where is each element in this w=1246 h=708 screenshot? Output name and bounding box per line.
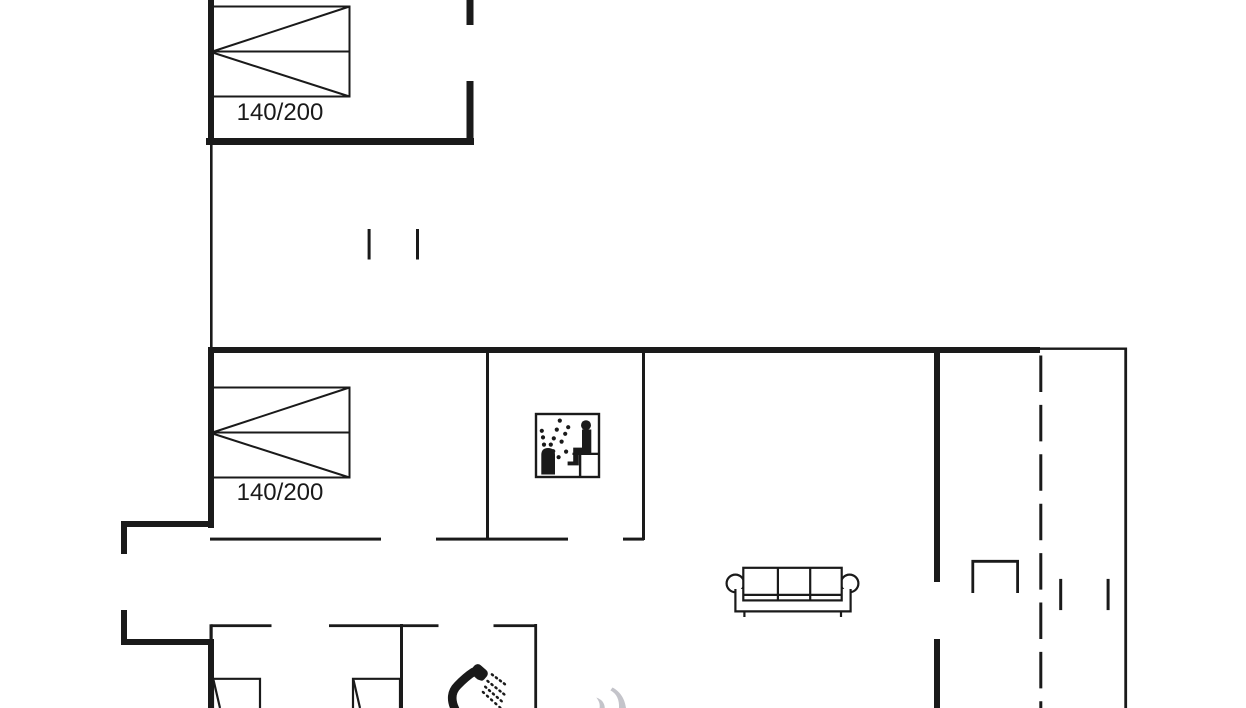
svg-text:140/200: 140/200 — [237, 479, 324, 506]
svg-text:140/200: 140/200 — [237, 99, 324, 126]
